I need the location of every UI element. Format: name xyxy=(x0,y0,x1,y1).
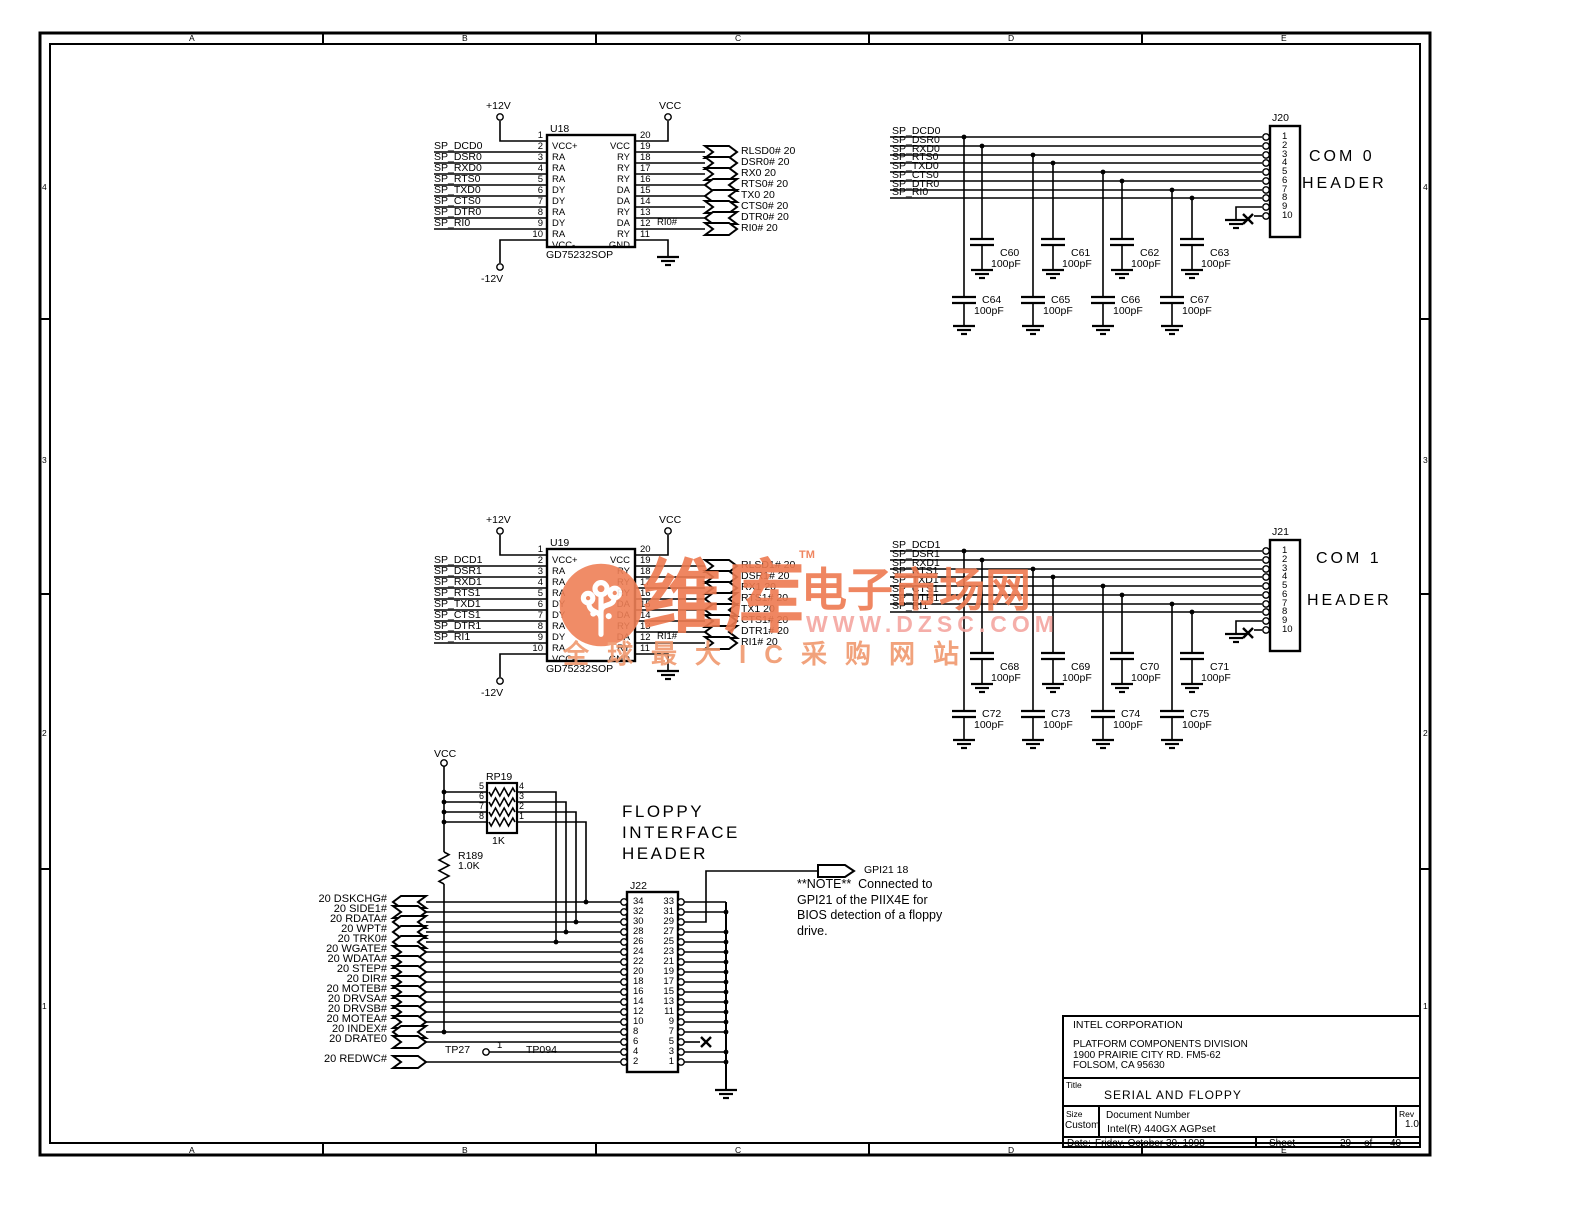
company-name: INTEL CORPORATION xyxy=(1073,1020,1183,1031)
title-label: Title xyxy=(1066,1081,1082,1090)
pin-function: DY xyxy=(552,186,565,196)
pin-number: 8 xyxy=(538,622,543,632)
grid-col-label: E xyxy=(1281,34,1287,43)
net-label: SP_DTR0 xyxy=(434,207,481,218)
power-label: VCC xyxy=(659,101,681,112)
power-label: +12V xyxy=(486,515,511,526)
pin-function: VCC xyxy=(610,142,630,152)
power-label: VCC xyxy=(434,749,456,760)
rev-value: 1.0 xyxy=(1405,1120,1419,1130)
pin-number: 13 xyxy=(640,208,651,218)
cap-ref: C74 xyxy=(1121,709,1140,720)
floppy-header-title: HEADER xyxy=(622,845,708,862)
date-label: Date: xyxy=(1067,1139,1091,1149)
pin-function: RY xyxy=(617,589,630,599)
connector-ref: J22 xyxy=(630,881,647,892)
title-block-title-row: Title SERIAL AND FLOPPY xyxy=(1064,1079,1419,1107)
size-value: Custom xyxy=(1065,1121,1099,1131)
pin-number: 7 xyxy=(479,802,484,811)
pin-function: DY xyxy=(552,197,565,207)
pin-number: 1 xyxy=(538,131,543,141)
pin-number: 20 xyxy=(640,545,651,555)
pin-number: 15 xyxy=(640,600,651,610)
pin-number: 15 xyxy=(640,186,651,196)
pin-number: 18 xyxy=(640,153,651,163)
title-block-company-row: INTEL CORPORATION PLATFORM COMPONENTS DI… xyxy=(1064,1017,1419,1079)
pin-number: 8 xyxy=(538,208,543,218)
net-label: TX1 20 xyxy=(741,604,775,615)
pin-number: 6 xyxy=(538,186,543,196)
sheet-total: 40 xyxy=(1390,1139,1401,1149)
net-label: SP_TXD1 xyxy=(434,599,481,610)
pin-function: DA xyxy=(617,633,630,643)
cap-value: 100pF xyxy=(1062,673,1092,684)
pin-function: DA xyxy=(617,611,630,621)
pin-function: RY xyxy=(617,153,630,163)
floppy-header-title: INTERFACE xyxy=(622,824,740,841)
pin-number: 13 xyxy=(640,622,651,632)
net-label: SP_RTS1 xyxy=(434,588,481,599)
pin-function: RA xyxy=(552,644,565,654)
com-header-title: HEADER xyxy=(1302,176,1387,192)
schematic-sheet: AABBCCDDEE44332211U18GD75232SOP1VCC+2RA3… xyxy=(0,0,1584,1223)
chip-ref: U18 xyxy=(550,124,569,135)
pin-number: 14 xyxy=(640,197,651,207)
pin-function: DA xyxy=(617,600,630,610)
net-label: SP_RI0 xyxy=(892,187,928,198)
cap-value: 100pF xyxy=(1043,306,1073,317)
pin-function: RY xyxy=(617,175,630,185)
pin-function: RY xyxy=(617,230,630,240)
pin-function: RA xyxy=(552,164,565,174)
pin-number: 5 xyxy=(538,589,543,599)
pin-number: 10 xyxy=(532,230,543,240)
pin-function: RY xyxy=(617,567,630,577)
power-label: -12V xyxy=(481,688,503,699)
net-label: SP_DTR1 xyxy=(434,621,481,632)
pin-number: 7 xyxy=(538,611,543,621)
cap-ref: C61 xyxy=(1071,248,1090,259)
net-label: CTS0# 20 xyxy=(741,201,788,212)
net-label: SP_DSR1 xyxy=(434,566,482,577)
net-label: RTS0# 20 xyxy=(741,179,788,190)
cap-ref: C70 xyxy=(1140,662,1159,673)
chip-part: GD75232SOP xyxy=(546,250,613,261)
divider xyxy=(1255,1138,1257,1148)
pin-function: RY xyxy=(617,578,630,588)
pin-function: VCC- xyxy=(552,655,575,665)
net-label: SP_DSR0 xyxy=(434,152,482,163)
cap-ref: C71 xyxy=(1210,662,1229,673)
title-block-date-row: Date: Friday, October 30, 1998 Sheet 29 … xyxy=(1064,1138,1419,1148)
cap-value: 100pF xyxy=(1201,259,1231,270)
grid-row-label: 2 xyxy=(42,729,47,738)
grid-col-label: A xyxy=(189,34,195,43)
pin-function: RA xyxy=(552,230,565,240)
pin-function: VCC+ xyxy=(552,556,578,566)
cap-ref: C72 xyxy=(982,709,1001,720)
pin-function: RA xyxy=(552,153,565,163)
pin-function: RA xyxy=(552,567,565,577)
net-label: 20 REDWC# xyxy=(324,1054,387,1065)
pin-number: 20 xyxy=(640,131,651,141)
cap-ref: C66 xyxy=(1121,295,1140,306)
cap-ref: C67 xyxy=(1190,295,1209,306)
pin-function: VCC- xyxy=(552,241,575,251)
grid-row-label: 1 xyxy=(1423,1002,1428,1011)
rev-label: Rev xyxy=(1399,1110,1414,1119)
grid-col-label: C xyxy=(735,34,741,43)
cap-ref: C63 xyxy=(1210,248,1229,259)
pin-number: 5 xyxy=(479,782,484,791)
grid-col-label: B xyxy=(462,34,468,43)
pin-number: 3 xyxy=(519,792,524,801)
pin-number: 1 xyxy=(669,1057,674,1067)
note-text: BIOS detection of a floppy xyxy=(797,909,942,922)
net-label: RLSD0# 20 xyxy=(741,146,795,157)
pin-number: 19 xyxy=(640,556,651,566)
net-label: SP_DCD1 xyxy=(434,555,482,566)
grid-col-label: B xyxy=(462,1146,468,1155)
pin-function: DA xyxy=(617,186,630,196)
grid-col-label: D xyxy=(1008,34,1014,43)
pin-number: 11 xyxy=(640,644,650,654)
pin-number: 17 xyxy=(640,578,651,588)
pin-function: RA xyxy=(552,589,565,599)
doc-number-label: Document Number xyxy=(1106,1111,1190,1121)
pin-number: 10 xyxy=(532,644,543,654)
net-label: SP_CTS0 xyxy=(434,196,481,207)
pin-function: GND xyxy=(609,241,630,251)
net-label: RI0# xyxy=(657,218,677,228)
sheet-title: SERIAL AND FLOPPY xyxy=(1104,1089,1242,1101)
net-label: TX0 20 xyxy=(741,190,775,201)
grid-row-label: 2 xyxy=(1423,729,1428,738)
net-label: RI1# 20 xyxy=(741,637,778,648)
cap-value: 100pF xyxy=(1043,720,1073,731)
cap-value: 100pF xyxy=(1201,673,1231,684)
pin-function: DA xyxy=(617,197,630,207)
pin-number: 12 xyxy=(640,219,651,229)
sheet-of-label: of xyxy=(1364,1139,1372,1149)
pin-number: 2 xyxy=(519,802,524,811)
grid-row-label: 3 xyxy=(42,456,47,465)
net-label: RX1 20 xyxy=(741,582,776,593)
pin-number: 2 xyxy=(633,1057,638,1067)
chip-part: GD75232SOP xyxy=(546,664,613,675)
net-label: GPI21 18 xyxy=(864,865,908,876)
title-block: INTEL CORPORATION PLATFORM COMPONENTS DI… xyxy=(1062,1015,1421,1148)
testpoint-label: TP27 xyxy=(445,1045,470,1056)
grid-row-label: 1 xyxy=(42,1002,47,1011)
net-label: SP_RI1 xyxy=(434,632,470,643)
net-label: DTR0# 20 xyxy=(741,212,789,223)
pin-number: 10 xyxy=(1282,211,1293,221)
pin-number: 4 xyxy=(538,578,543,588)
pin-number: 11 xyxy=(640,230,650,240)
divider xyxy=(1395,1107,1397,1136)
power-label: VCC xyxy=(659,515,681,526)
com-header-title: COM 0 xyxy=(1309,149,1375,165)
cap-value: 100pF xyxy=(991,673,1021,684)
testpoint-label: TP094 xyxy=(526,1045,557,1056)
pin-function: RY xyxy=(617,622,630,632)
size-label: Size xyxy=(1066,1110,1083,1119)
net-label: SP_DCD0 xyxy=(434,141,482,152)
pin-function: RY xyxy=(617,164,630,174)
cap-ref: C69 xyxy=(1071,662,1090,673)
power-label: -12V xyxy=(481,274,503,285)
sheet-number: 29 xyxy=(1340,1139,1351,1149)
pin-number: 14 xyxy=(640,611,651,621)
pin-function: DY xyxy=(552,633,565,643)
pin-function: RA xyxy=(552,622,565,632)
resistor-value: 1.0K xyxy=(458,861,480,872)
pin-number: 17 xyxy=(640,164,651,174)
pin-number: 16 xyxy=(640,175,651,185)
cap-ref: C60 xyxy=(1000,248,1019,259)
pin-function: RA xyxy=(552,175,565,185)
pin-number: 10 xyxy=(1282,625,1293,635)
net-label: RLSD1# 20 xyxy=(741,560,795,571)
net-label: DSR1# 20 xyxy=(741,571,789,582)
pin-function: GND xyxy=(609,655,630,665)
pin-function: DY xyxy=(552,611,565,621)
pin-number: 2 xyxy=(538,556,543,566)
cap-ref: C73 xyxy=(1051,709,1070,720)
pin-number: 4 xyxy=(538,164,543,174)
pin-function: RY xyxy=(617,208,630,218)
cap-value: 100pF xyxy=(991,259,1021,270)
net-label: RI1# xyxy=(657,632,677,642)
pin-function: VCC xyxy=(610,556,630,566)
grid-col-label: C xyxy=(735,1146,741,1155)
cap-value: 100pF xyxy=(1131,673,1161,684)
pin-number: 12 xyxy=(640,633,651,643)
net-label: RX0 20 xyxy=(741,168,776,179)
pin-number: 9 xyxy=(538,633,543,643)
title-block-doc-row: Size Custom Document Number Intel(R) 440… xyxy=(1064,1107,1419,1138)
net-label: RTS1# 20 xyxy=(741,593,788,604)
pin-number: 18 xyxy=(640,567,651,577)
net-label: SP_TXD0 xyxy=(434,185,481,196)
doc-number-value: Intel(R) 440GX AGPset xyxy=(1107,1124,1216,1135)
pin-number: 16 xyxy=(640,589,651,599)
grid-col-label: A xyxy=(189,1146,195,1155)
net-label: CTS1# 20 xyxy=(741,615,788,626)
date-value: Friday, October 30, 1998 xyxy=(1095,1139,1205,1149)
net-label: RI0# 20 xyxy=(741,223,778,234)
pin-function: DA xyxy=(617,219,630,229)
grid-row-label: 4 xyxy=(42,183,47,192)
power-label: +12V xyxy=(486,101,511,112)
net-label: SP_RXD1 xyxy=(434,577,482,588)
net-label: SP_CTS1 xyxy=(434,610,481,621)
pin-function: VCC+ xyxy=(552,142,578,152)
cap-ref: C64 xyxy=(982,295,1001,306)
cap-ref: C68 xyxy=(1000,662,1019,673)
cap-value: 100pF xyxy=(1062,259,1092,270)
pin-number: 19 xyxy=(640,142,651,152)
cap-ref: C75 xyxy=(1190,709,1209,720)
cap-value: 100pF xyxy=(974,720,1004,731)
net-label: SP_RXD0 xyxy=(434,163,482,174)
connector-ref: J21 xyxy=(1272,527,1289,538)
pin-number: 6 xyxy=(538,600,543,610)
net-label: DTR1# 20 xyxy=(741,626,789,637)
pin-number: 2 xyxy=(538,142,543,152)
cap-value: 100pF xyxy=(1113,306,1143,317)
pin-number: 3 xyxy=(538,153,543,163)
com-header-title: HEADER xyxy=(1307,593,1392,609)
pin-number: 1 xyxy=(519,812,524,821)
cap-ref: C65 xyxy=(1051,295,1070,306)
com-header-title: COM 1 xyxy=(1316,551,1382,567)
note-text: drive. xyxy=(797,925,828,938)
grid-col-label: D xyxy=(1008,1146,1014,1155)
cap-value: 100pF xyxy=(1182,306,1212,317)
net-label: SP_RTS0 xyxy=(434,174,481,185)
pin-function: DY xyxy=(552,219,565,229)
pin-number: 7 xyxy=(538,197,543,207)
company-address2: FOLSOM, CA 95630 xyxy=(1073,1061,1165,1071)
cap-value: 100pF xyxy=(1131,259,1161,270)
note-text: GPI21 of the PIIX4E for xyxy=(797,894,928,907)
grid-row-label: 3 xyxy=(1423,456,1428,465)
company-division: PLATFORM COMPONENTS DIVISION xyxy=(1073,1040,1248,1050)
connector-ref: J20 xyxy=(1272,113,1289,124)
floppy-header-title: FLOPPY xyxy=(622,803,704,820)
pin-number: 8 xyxy=(479,812,484,821)
pin-number: 1 xyxy=(538,545,543,555)
net-label: 20 DRATE0 xyxy=(329,1034,387,1045)
pin-number: 6 xyxy=(479,792,484,801)
cap-value: 100pF xyxy=(974,306,1004,317)
pin-function: RY xyxy=(617,644,630,654)
chip-ref: U19 xyxy=(550,538,569,549)
rpack-value: 1K xyxy=(492,836,505,847)
note-text: **NOTE** Connected to xyxy=(797,878,933,891)
sheet-label: Sheet xyxy=(1269,1139,1295,1149)
pin-number: 3 xyxy=(538,567,543,577)
cap-ref: C62 xyxy=(1140,248,1159,259)
net-label: SP_RI1 xyxy=(892,601,928,612)
cap-value: 100pF xyxy=(1113,720,1143,731)
cap-value: 100pF xyxy=(1182,720,1212,731)
net-label: SP_RI0 xyxy=(434,218,470,229)
pin-number: 9 xyxy=(538,219,543,229)
grid-row-label: 4 xyxy=(1423,183,1428,192)
rpack-ref: RP19 xyxy=(486,772,512,783)
net-label: DSR0# 20 xyxy=(741,157,789,168)
pin-function: RA xyxy=(552,208,565,218)
pin-number: 4 xyxy=(519,782,524,791)
pin-number: 5 xyxy=(538,175,543,185)
pin-function: DY xyxy=(552,600,565,610)
pin-function: RA xyxy=(552,578,565,588)
wire-label: 1 xyxy=(497,1041,502,1051)
